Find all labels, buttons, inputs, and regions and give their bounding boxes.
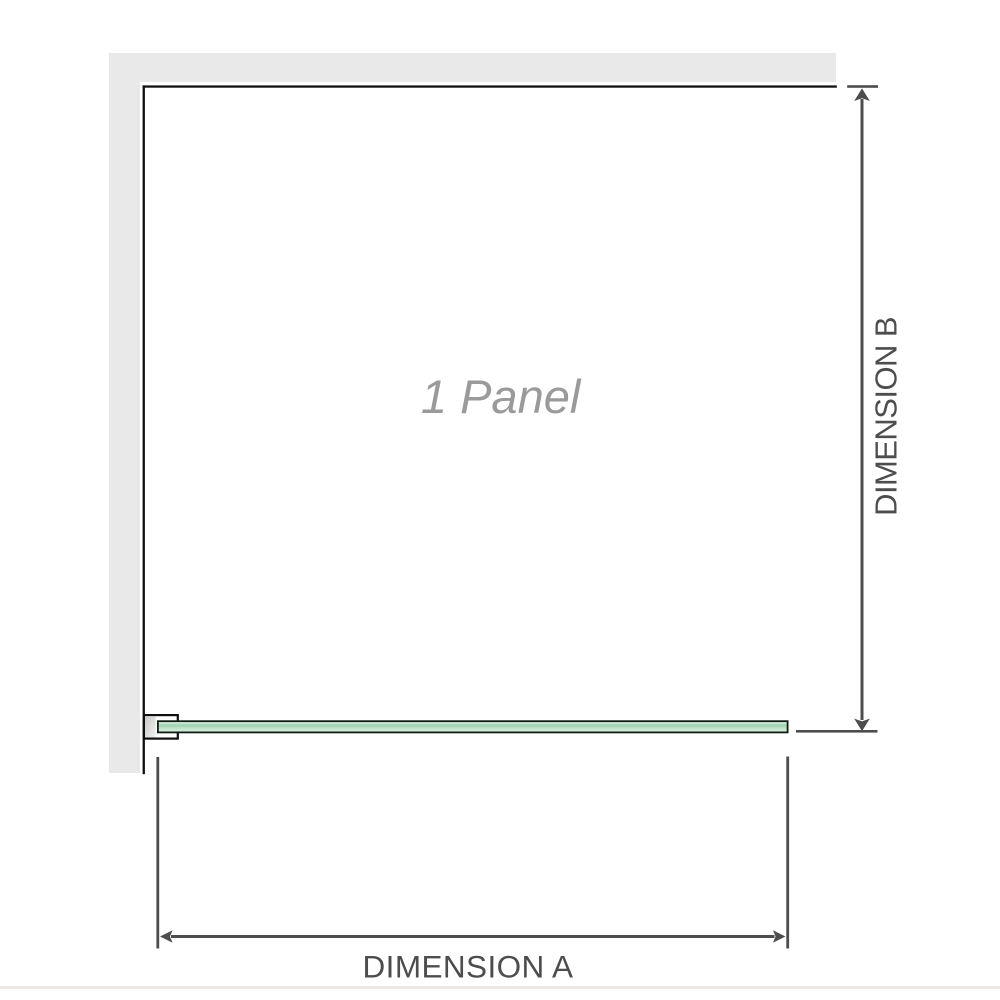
svg-text:DIMENSION B: DIMENSION B	[869, 317, 904, 516]
svg-text:1 Panel: 1 Panel	[421, 370, 582, 423]
svg-text:DIMENSION A: DIMENSION A	[363, 948, 574, 984]
